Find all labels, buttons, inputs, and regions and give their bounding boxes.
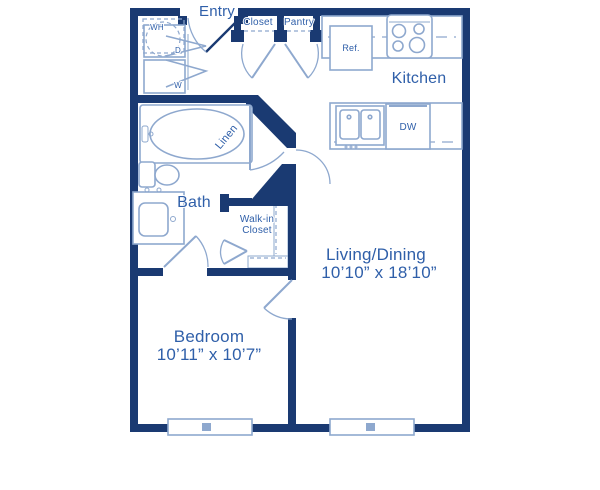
divider-foot xyxy=(310,30,323,42)
bedroom-dims: 10’11” x 10’7” xyxy=(157,345,262,364)
closet-label: Closet xyxy=(243,17,273,28)
bedroom-label: Bedroom xyxy=(174,327,244,346)
living-dims: 10’10” x 18’10” xyxy=(321,263,437,282)
walkin-door-leaf xyxy=(224,240,247,251)
linen-door-arc xyxy=(250,152,284,170)
closet-door-arc xyxy=(242,44,252,78)
toilet-bowl xyxy=(155,165,179,185)
divider-foot xyxy=(274,30,287,42)
wall-top-left xyxy=(130,8,180,16)
bedroom-door-leaf xyxy=(264,280,292,308)
washer-label: W xyxy=(174,81,182,90)
kitchen-label: Kitchen xyxy=(392,70,447,87)
pantry-label: Pantry xyxy=(284,17,314,28)
stove-body xyxy=(387,15,432,58)
stove xyxy=(387,15,432,58)
walkin-door-arc xyxy=(221,240,225,264)
water-heater-label: WH xyxy=(150,23,164,32)
floorplan-canvas: Entry Closet Pantry Ref. Kitchen WH D W … xyxy=(0,0,600,490)
walkin-door-leaf2 xyxy=(224,251,247,264)
floorplan-drawing: Entry Closet Pantry Ref. Kitchen WH D W … xyxy=(0,0,600,490)
closet-door-leaf xyxy=(252,44,275,78)
hall-door-arc xyxy=(296,150,330,184)
walkin-label-line1: Walk-in xyxy=(240,214,274,225)
wall-top-right xyxy=(238,8,470,16)
walkin-door xyxy=(221,240,248,264)
divider-foot xyxy=(231,30,244,42)
living-label: Living/Dining xyxy=(326,245,426,264)
bedroom-door-arc xyxy=(264,308,292,319)
pantry-door-leaf xyxy=(285,44,308,78)
wall-bedroom-north-left xyxy=(130,268,163,276)
pantry-door-arc xyxy=(308,44,318,78)
wall-living-bedroom xyxy=(288,318,296,424)
walkin-label-line2: Closet xyxy=(242,225,272,236)
window-bedroom-mullion xyxy=(202,423,211,431)
kitchen-island xyxy=(330,103,462,149)
bath-label: Bath xyxy=(177,194,211,211)
window-living-mullion xyxy=(366,423,375,431)
dryer-label: D xyxy=(175,46,181,55)
wall-bedroom-north-right xyxy=(207,268,296,276)
bedroom-door xyxy=(264,280,292,319)
refrigerator-label: Ref. xyxy=(342,43,359,53)
entry-label: Entry xyxy=(199,3,235,20)
wall-walkin-corner xyxy=(246,164,296,206)
wall-linen-diagonal xyxy=(246,95,296,148)
entry-jamb-left xyxy=(178,16,187,25)
wall-laundry-bath xyxy=(130,95,252,103)
wall-walkin-nub xyxy=(220,194,229,212)
dishwasher-label: DW xyxy=(399,122,416,133)
toilet-tank xyxy=(139,162,155,187)
wall-right xyxy=(462,8,470,432)
bath-door-arc xyxy=(196,236,208,267)
